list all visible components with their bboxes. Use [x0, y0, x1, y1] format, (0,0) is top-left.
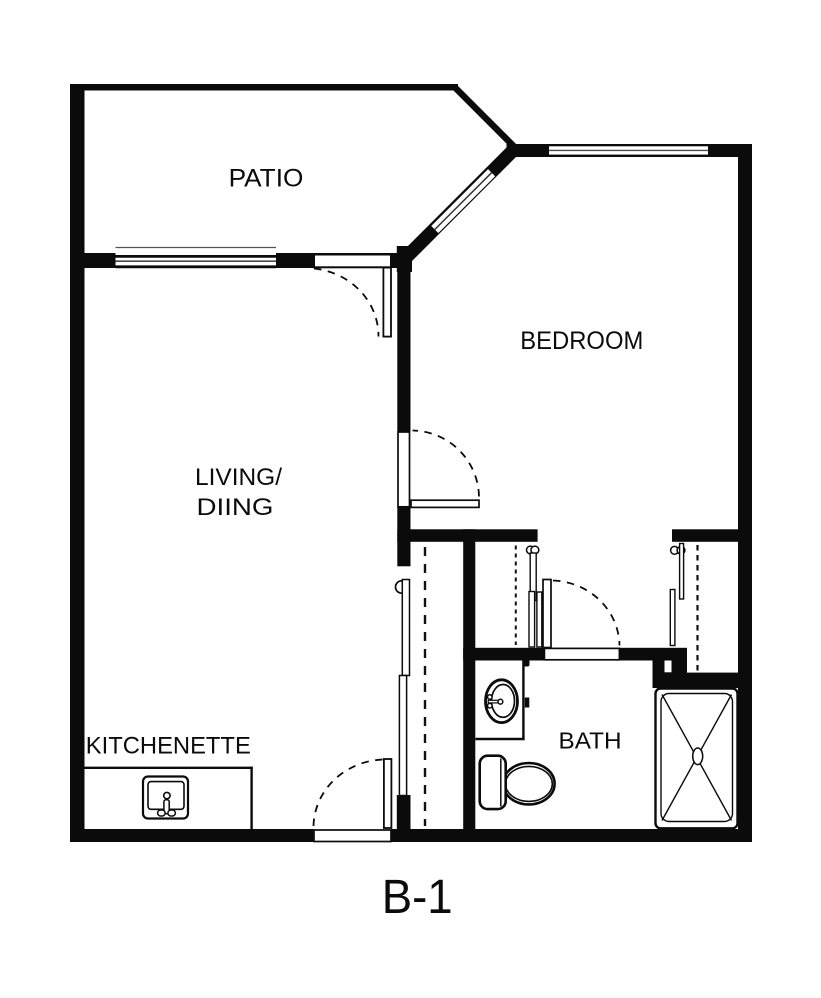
svg-text:BATH: BATH [559, 728, 622, 754]
svg-text:B-1: B-1 [382, 871, 453, 924]
svg-text:BEDROOM: BEDROOM [520, 327, 643, 355]
svg-text:DIING: DIING [197, 494, 274, 521]
svg-text:KITCHENETTE: KITCHENETTE [86, 733, 251, 760]
svg-text:LIVING/: LIVING/ [195, 464, 282, 491]
svg-text:PATIO: PATIO [229, 164, 304, 192]
